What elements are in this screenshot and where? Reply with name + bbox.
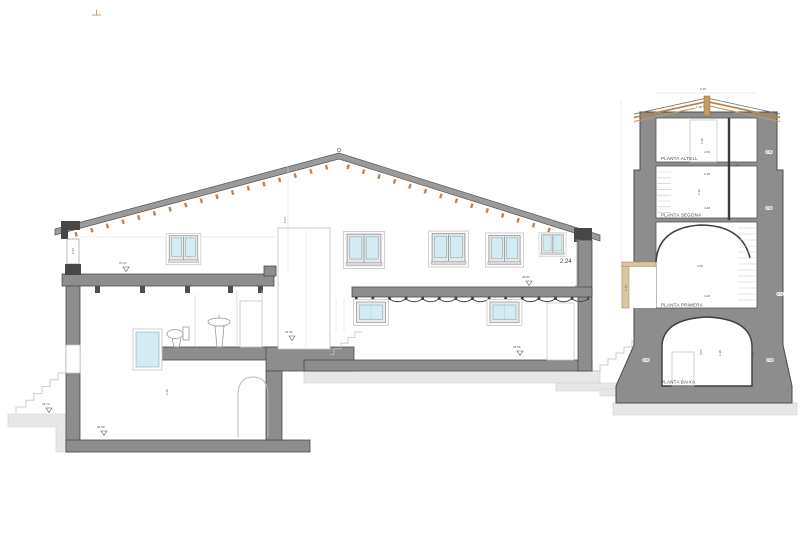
dim-label: 1.08 [751,352,755,358]
ridge-post [704,96,710,116]
corner-scale-mark [92,10,101,16]
dim-label: 3.07 [699,349,703,355]
tower-door-lintel [622,262,656,267]
dim-label: 1.98 [718,350,722,356]
level-marker: 37.23 [119,261,129,272]
ridge-finial [337,148,341,152]
upper-slab-hook [264,266,276,276]
dim-label: 0.90 [766,206,772,210]
dim-label: 1.72 [624,285,628,291]
dim-label: 2.45 [165,389,169,395]
dim-label: 2.24 [560,259,572,265]
ground-right-band [304,371,600,383]
bathroom-door [240,301,262,347]
ground-left [8,414,66,452]
dim-label: 1.90 [700,138,704,144]
lower-floor-slab [304,360,592,371]
rafter-ticks-left [75,166,333,235]
upper-slab-right [352,287,592,297]
dim-label: 0.28 [767,358,773,362]
toilet [167,327,189,347]
bath-floor-slab [158,347,282,360]
window [429,231,469,267]
dim-label: 2.47 [283,217,287,223]
dim-label: 0.20 [733,163,739,167]
basement-arch-niche [238,377,268,437]
svg-text:31.73: 31.73 [42,402,50,406]
bathroom [167,290,262,347]
dim-label: 0.15 [700,87,706,91]
dim-label: 0.29 [704,172,710,176]
level-marker: 35.84 [522,275,532,286]
level-marker: 33.86 [513,345,523,356]
window [354,300,389,326]
dim-label: 0.73 [777,292,783,296]
svg-text:30.99: 30.99 [97,425,105,429]
svg-text:35.84: 35.84 [522,275,530,279]
dim-label: 0.36 [766,150,772,154]
window-small [539,232,566,256]
svg-text:34.56: 34.56 [285,330,293,334]
basement-bottom-slab [66,440,310,452]
basement-door-opening [66,345,80,373]
dim-label: 4.48 [704,206,710,210]
floor-label-primera: PLANTA PRIMERA [661,303,703,308]
floor-label-baixa: PLANTA BAIXA [661,380,695,385]
room-baixa-vault [662,317,752,386]
ground-tower-band [613,403,797,415]
window [166,233,201,264]
upper-slab-left [62,274,274,286]
section-drawing-page: 2.24 37.23 35.84 34.56 33.86 31.73 30.99 [0,0,800,533]
right-wall [578,240,592,371]
floor-label-segona: PLANTA SEGONA [661,213,701,218]
window [343,232,384,269]
section-drawing: 2.24 37.23 35.84 34.56 33.86 31.73 30.99 [0,0,800,533]
dim-label: 1.48 [696,105,702,109]
svg-text:37.23: 37.23 [119,261,127,265]
dim-label: 4.60 [704,150,710,154]
svg-text:33.86: 33.86 [513,345,521,349]
glass-door-pane [133,329,162,370]
left-wall-plate-block [65,264,81,275]
tower-door-opening [632,266,656,308]
ceiling-beams-left [95,286,263,293]
floor-label-altell: PLANTA ALTELL [661,156,698,161]
dim-label: 2.12 [71,248,75,254]
sink [208,315,230,347]
lower-room-door [547,303,574,360]
dim-label: 2.20 [697,189,701,195]
dim-label: 0.86 [643,358,649,362]
level-marker: 31.73 [42,402,52,413]
window [485,233,523,267]
vault-ceiling [355,297,589,302]
tower [616,93,792,403]
windows-lower [354,300,523,326]
windows-upper [166,231,566,268]
dim-label: 3.60 [697,264,703,268]
level-marker: 30.99 [97,425,107,436]
exterior-stairs-left [16,373,66,413]
rafter-ticks-right [347,167,586,242]
window [487,300,522,326]
dim-label: 4.20 [704,294,710,298]
